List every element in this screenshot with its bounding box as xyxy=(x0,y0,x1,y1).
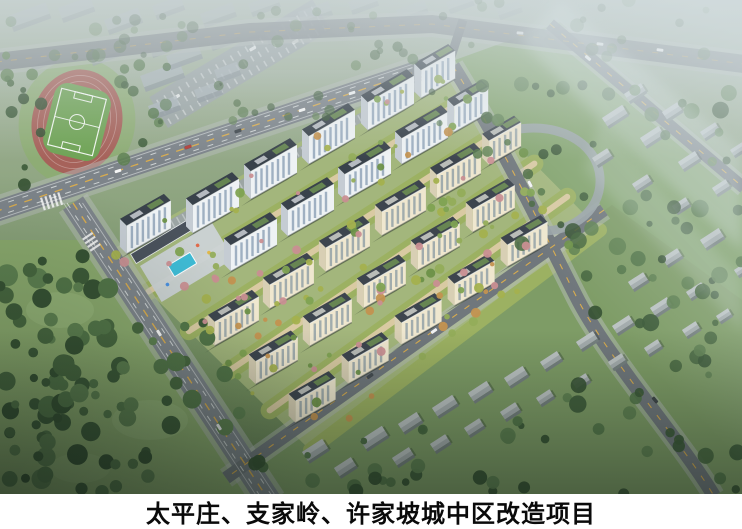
caption-bar: 太平庄、支家岭、许家坡城中区改造项目 xyxy=(0,494,742,529)
haze-overlay xyxy=(0,0,742,494)
aerial-rendering xyxy=(0,0,742,494)
screenshot-frame: 太平庄、支家岭、许家坡城中区改造项目 xyxy=(0,0,742,529)
caption-text: 太平庄、支家岭、许家坡城中区改造项目 xyxy=(146,494,596,529)
